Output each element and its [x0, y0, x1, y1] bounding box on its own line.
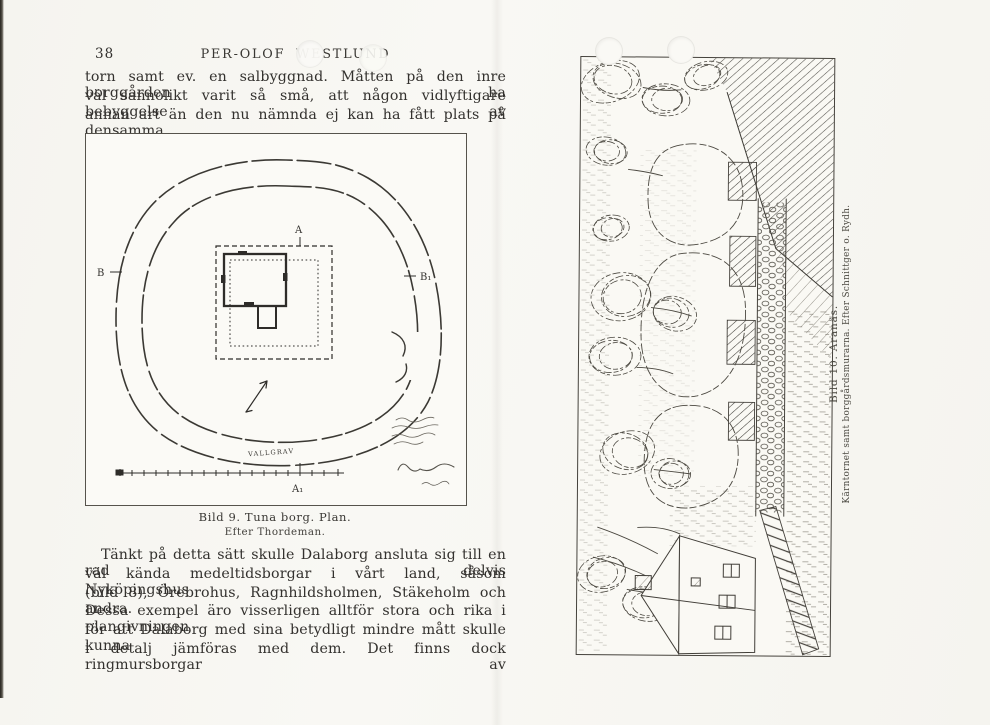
illustration-bild-10 — [576, 56, 836, 657]
facade-mark — [691, 578, 700, 586]
text-line: torn samt ev. en salbyggnad. Måtten på d… — [85, 69, 506, 88]
figure-caption: Bild 9. Tuna borg. Plan. — [85, 510, 465, 524]
plan-label-a1: A₁ — [291, 484, 303, 495]
slope-hatching — [638, 149, 697, 475]
illustration-caption-title: Bild 10. Aranäs. — [828, 204, 840, 504]
plan-inner-ring — [142, 186, 418, 443]
section-ticks — [110, 237, 416, 473]
ring-gap — [386, 332, 432, 380]
text-line: annan art än den nu nämnda ej kan ha fåt… — [85, 107, 506, 126]
plan-outer-ring — [116, 160, 441, 466]
text-line: (bild 8), Örebrohus, Ragnhildsholmen, St… — [85, 585, 506, 604]
plan-label-moat: VALLGRAV — [247, 447, 295, 458]
scan-dark-edge — [0, 0, 4, 698]
punch-hole — [595, 37, 623, 65]
stone-wall — [756, 198, 786, 516]
handwritten-signature — [398, 464, 454, 485]
paragraph-bottom: Tänkt på detta sätt skulle Dalaborg ansl… — [85, 547, 506, 660]
text-line: Tänkt på detta sätt skulle Dalaborg ansl… — [85, 547, 506, 566]
text-line: väl sannolikt varit så små, att någon vi… — [85, 88, 506, 107]
text-line: väl kända medeltidsborgar i vårt land, s… — [85, 566, 506, 585]
manor-house — [635, 535, 756, 654]
castle-ruin-drawing — [577, 57, 835, 656]
castle-plan-drawing: A A₁ B B₁ VALLGRAV — [86, 134, 466, 505]
punch-hole — [296, 40, 324, 68]
plan-label-a: A — [294, 225, 303, 236]
scale-bar — [116, 469, 344, 476]
text-line: i detalj jämföras med dem. Det finns doc… — [85, 641, 506, 660]
figure-caption-credit: Efter Thordeman. — [85, 526, 465, 538]
paragraph-top: torn samt ev. en salbyggnad. Måtten på d… — [85, 69, 506, 125]
courtyard-wall-segments — [726, 162, 756, 440]
illustration-caption-rotated: Bild 10. Aranäs. Kärntornet samt borggår… — [828, 204, 866, 504]
plan-label-b1: B₁ — [420, 272, 431, 283]
plan-figure-bild-9: A A₁ B B₁ VALLGRAV — [85, 133, 467, 506]
text-line: Dessa exempel äro visserligen alltför st… — [85, 603, 506, 622]
illustration-caption-subtitle: Kärntornet samt borggårdsmurarna. Efter … — [842, 204, 852, 504]
plan-label-b: B — [97, 268, 104, 279]
punch-hole — [359, 44, 387, 72]
text-line: för att Dalaborg med sina betydligt mind… — [85, 622, 506, 641]
punch-hole — [667, 36, 695, 64]
chimney — [635, 575, 651, 589]
north-arrow — [246, 381, 267, 412]
scanned-book-spread: 38 PER-OLOF WESTLUND torn samt ev. en sa… — [0, 0, 990, 725]
inner-buildings — [216, 246, 332, 359]
